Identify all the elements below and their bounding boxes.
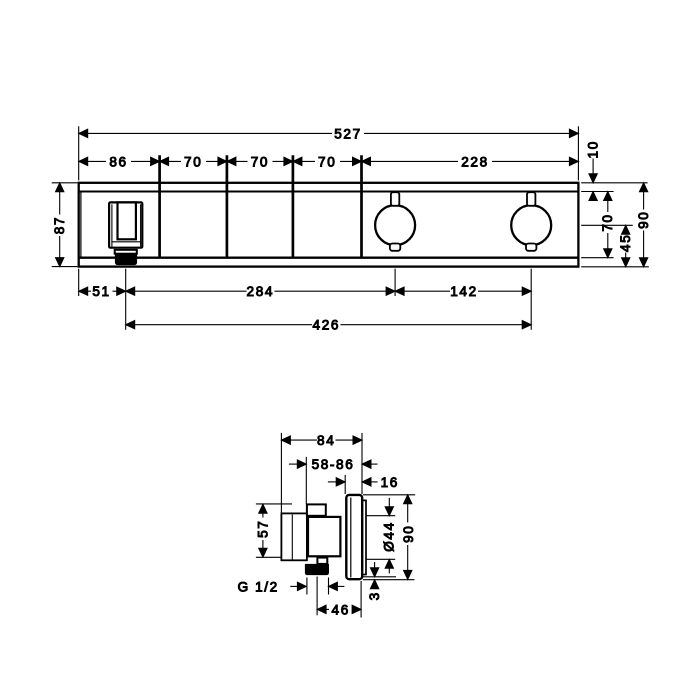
svg-text:46: 46: [332, 602, 350, 617]
svg-text:57: 57: [255, 520, 270, 538]
svg-text:142: 142: [450, 284, 477, 299]
svg-text:527: 527: [334, 126, 361, 141]
svg-text:228: 228: [461, 154, 488, 169]
svg-text:70: 70: [184, 154, 202, 169]
svg-text:84: 84: [317, 433, 335, 448]
svg-text:70: 70: [251, 154, 269, 169]
svg-text:70: 70: [600, 213, 615, 231]
svg-text:51: 51: [92, 284, 110, 299]
svg-text:G 1/2: G 1/2: [238, 580, 279, 595]
svg-text:284: 284: [247, 284, 274, 299]
svg-text:90: 90: [401, 525, 416, 543]
svg-text:10: 10: [586, 140, 601, 158]
svg-text:16: 16: [381, 475, 399, 490]
svg-text:45: 45: [618, 234, 633, 252]
svg-text:87: 87: [52, 216, 67, 234]
svg-text:86: 86: [109, 154, 127, 169]
svg-text:90: 90: [636, 211, 651, 229]
svg-text:3: 3: [367, 591, 382, 600]
svg-text:70: 70: [318, 154, 336, 169]
svg-text:426: 426: [313, 318, 340, 333]
svg-text:Ø44: Ø44: [382, 521, 397, 552]
svg-text:58-86: 58-86: [312, 457, 355, 472]
